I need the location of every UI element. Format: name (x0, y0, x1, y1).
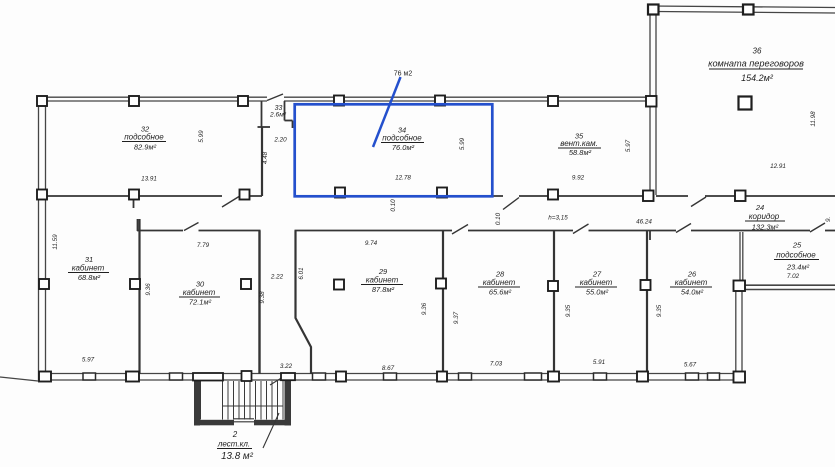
svg-text:0.10: 0.10 (390, 199, 397, 212)
svg-text:9.37: 9.37 (453, 311, 460, 324)
svg-text:подсобное: подсобное (776, 251, 816, 260)
svg-text:9.35: 9.35 (656, 304, 663, 317)
svg-text:9.35: 9.35 (565, 304, 572, 317)
svg-text:кабинет: кабинет (366, 276, 399, 285)
svg-text:68.8м²: 68.8м² (78, 273, 101, 282)
svg-text:2.22: 2.22 (270, 274, 284, 281)
svg-text:комната переговоров: комната переговоров (708, 59, 804, 69)
svg-text:3.22: 3.22 (280, 363, 293, 370)
svg-text:7.02: 7.02 (787, 273, 800, 280)
svg-text:5.99: 5.99 (198, 130, 205, 143)
svg-text:72.1м²: 72.1м² (189, 298, 212, 307)
svg-text:12.91: 12.91 (770, 163, 786, 170)
svg-text:87.8м²: 87.8м² (372, 285, 395, 294)
svg-text:6.01: 6.01 (298, 267, 305, 279)
svg-text:24: 24 (755, 203, 764, 212)
svg-text:9.74: 9.74 (365, 240, 378, 247)
svg-text:82.9м²: 82.9м² (134, 143, 157, 152)
svg-text:36: 36 (753, 47, 762, 56)
svg-text:кабинет: кабинет (183, 288, 216, 297)
svg-text:подсобное: подсобное (382, 134, 422, 143)
svg-text:46.24: 46.24 (636, 219, 652, 226)
svg-text:0.10: 0.10 (495, 212, 502, 225)
svg-text:25: 25 (792, 241, 802, 250)
svg-text:9.: 9. (825, 217, 832, 222)
svg-text:4.48: 4.48 (262, 151, 269, 164)
svg-text:9.38: 9.38 (259, 291, 266, 304)
svg-text:132.3м²: 132.3м² (752, 223, 779, 232)
svg-text:5.99: 5.99 (459, 137, 466, 150)
svg-text:2: 2 (232, 430, 238, 439)
svg-text:5.97: 5.97 (625, 139, 632, 152)
svg-text:h=3,15: h=3,15 (548, 215, 568, 222)
svg-text:5.97: 5.97 (82, 357, 95, 364)
svg-text:коридор: коридор (749, 212, 780, 221)
svg-text:кабинет: кабинет (483, 278, 516, 287)
svg-text:13.8 м²: 13.8 м² (221, 451, 254, 462)
svg-text:12.78: 12.78 (395, 175, 411, 182)
svg-text:23.4м²: 23.4м² (786, 263, 810, 272)
svg-text:лест.кл.: лест.кл. (217, 440, 250, 449)
svg-text:8.67: 8.67 (382, 365, 395, 372)
svg-text:2.20: 2.20 (273, 137, 287, 144)
svg-text:154.2м²: 154.2м² (741, 73, 774, 83)
svg-text:5.91: 5.91 (593, 359, 605, 366)
svg-text:9.36: 9.36 (421, 302, 428, 315)
svg-text:13.91: 13.91 (141, 176, 157, 183)
svg-text:76 м2: 76 м2 (394, 71, 413, 78)
svg-text:58.8м²: 58.8м² (569, 148, 592, 157)
svg-text:9.36: 9.36 (145, 283, 152, 296)
svg-text:9.92: 9.92 (572, 175, 585, 182)
svg-text:11.59: 11.59 (52, 234, 59, 250)
svg-text:5.67: 5.67 (684, 362, 697, 369)
svg-text:7.79: 7.79 (197, 242, 210, 249)
svg-text:11.98: 11.98 (810, 111, 817, 127)
svg-text:кабинет: кабинет (580, 278, 613, 287)
svg-text:76.0м²: 76.0м² (392, 143, 415, 152)
svg-text:кабинет: кабинет (675, 278, 708, 287)
svg-text:55.0м²: 55.0м² (586, 288, 609, 297)
svg-text:7.03: 7.03 (490, 361, 503, 368)
svg-text:кабинет: кабинет (72, 264, 105, 273)
svg-text:65.6м²: 65.6м² (489, 288, 512, 297)
svg-text:подсобное: подсобное (124, 133, 164, 142)
svg-text:вент.кам.: вент.кам. (560, 139, 598, 148)
svg-text:54.0м²: 54.0м² (681, 288, 704, 297)
svg-text:2.6м²: 2.6м² (269, 112, 287, 119)
